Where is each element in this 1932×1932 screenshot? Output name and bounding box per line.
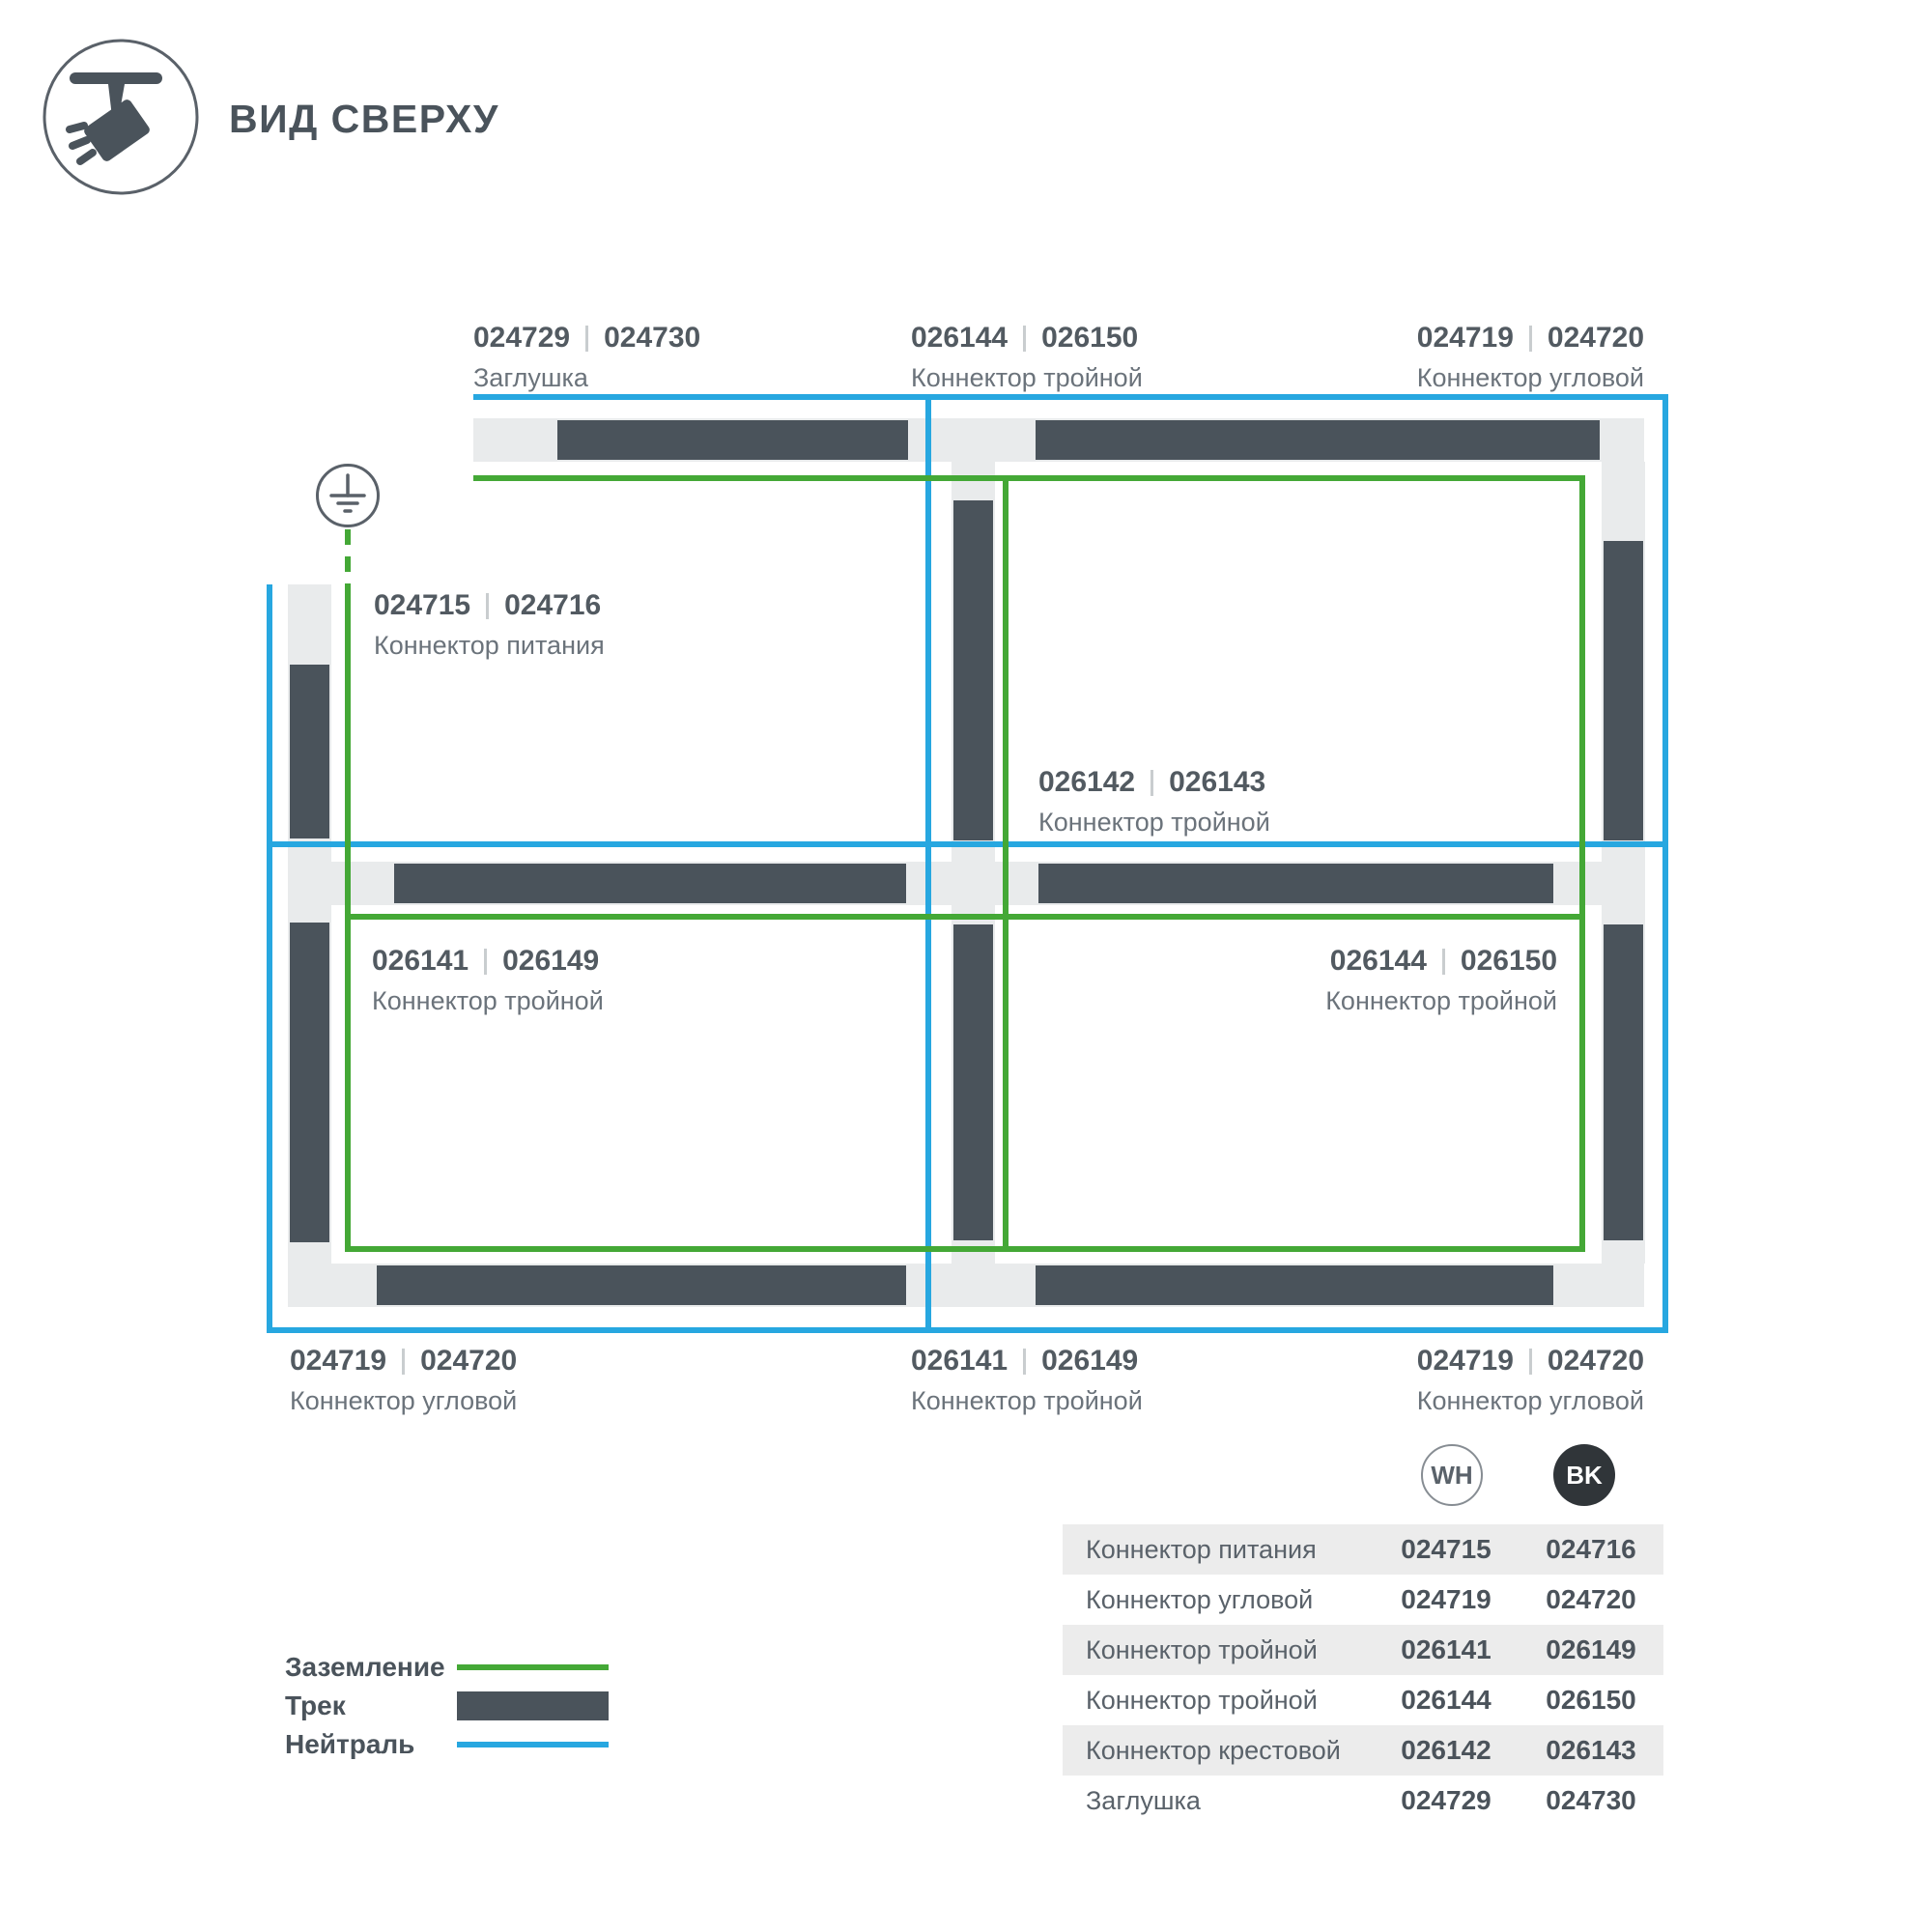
divider	[1023, 326, 1026, 352]
ground-symbol-icon	[316, 464, 380, 527]
track-segment	[1036, 420, 1600, 460]
track-segment	[377, 1265, 906, 1305]
track-segment	[953, 924, 993, 1240]
track-segment	[290, 665, 329, 838]
table-row: Коннектор угловой 024719 024720	[1063, 1575, 1663, 1625]
parts-table: Коннектор питания 024715 024716 Коннекто…	[1063, 1524, 1663, 1826]
neutral-line-middle	[267, 841, 1668, 847]
label-tee-bottom: 026141026149 Коннектор тройной	[911, 1345, 1143, 1416]
divider	[484, 949, 487, 975]
divider	[585, 326, 588, 352]
ground-line-top	[473, 475, 1585, 481]
divider	[1529, 326, 1532, 352]
ground-line-bottom	[345, 1246, 1585, 1252]
table-row: Коннектор тройной 026141 026149	[1063, 1625, 1663, 1675]
ground-line-center-vertical	[1003, 475, 1009, 1252]
label-tee-top: 026144026150 Коннектор тройной	[911, 322, 1143, 393]
label-power-feed: 024715024716 Коннектор питания	[374, 589, 605, 661]
neutral-line-bottom	[267, 1327, 1668, 1333]
track-segment	[1036, 1265, 1553, 1305]
divider	[1023, 1349, 1026, 1375]
table-row: Коннектор крестовой 026142 026143	[1063, 1725, 1663, 1776]
legend-item-track: Трек	[285, 1687, 609, 1725]
color-badge-wh: WH	[1421, 1444, 1483, 1506]
neutral-line-right	[1662, 394, 1668, 1333]
divider	[486, 593, 489, 619]
page-title: ВИД СВЕРХУ	[229, 97, 499, 142]
label-corner-top-right: 024719024720 Коннектор угловой	[1417, 322, 1644, 393]
label-tee-middle-left: 026141026149 Коннектор тройной	[372, 945, 604, 1016]
track-segment	[290, 923, 329, 1242]
legend: Заземление Трек Нейтраль	[285, 1648, 609, 1764]
track-swatch	[457, 1691, 609, 1720]
ground-line-right	[1579, 475, 1585, 1252]
neutral-line-left	[267, 584, 272, 1333]
neutral-line-top	[473, 394, 1668, 400]
legend-item-ground: Заземление	[285, 1648, 609, 1687]
label-tee-middle-right: 026144026150 Коннектор тройной	[1325, 945, 1557, 1016]
ground-line-middle	[345, 914, 1585, 920]
track-spotlight-icon	[41, 37, 201, 197]
track-segment	[394, 864, 906, 903]
track-segment	[1604, 924, 1643, 1240]
divider	[1151, 770, 1153, 796]
ground-line-dashed	[345, 529, 351, 584]
label-corner-bottom-left: 024719024720 Коннектор угловой	[290, 1345, 517, 1416]
label-center-junction: 026142026143 Коннектор тройной	[1038, 766, 1270, 838]
table-row: Коннектор питания 024715 024716	[1063, 1524, 1663, 1575]
divider	[402, 1349, 405, 1375]
legend-item-neutral: Нейтраль	[285, 1725, 609, 1764]
table-row: Заглушка 024729 024730	[1063, 1776, 1663, 1826]
divider	[1529, 1349, 1532, 1375]
track-segment	[1604, 541, 1643, 840]
ground-line-left	[345, 584, 351, 1252]
color-badge-bk: BK	[1553, 1444, 1615, 1506]
track-segment	[1038, 864, 1553, 903]
label-endcap-top: 024729024730 Заглушка	[473, 322, 700, 393]
divider	[1442, 949, 1445, 975]
page: { "header": { "title": "ВИД СВЕРХУ", "ic…	[0, 0, 1932, 1932]
track-segment	[953, 500, 993, 840]
table-row: Коннектор тройной 026144 026150	[1063, 1675, 1663, 1725]
neutral-line-swatch	[457, 1742, 609, 1747]
neutral-line-center-vertical	[925, 394, 931, 1333]
label-corner-bottom-right: 024719024720 Коннектор угловой	[1417, 1345, 1644, 1416]
ground-line-swatch	[457, 1664, 609, 1670]
track-segment	[557, 420, 908, 460]
